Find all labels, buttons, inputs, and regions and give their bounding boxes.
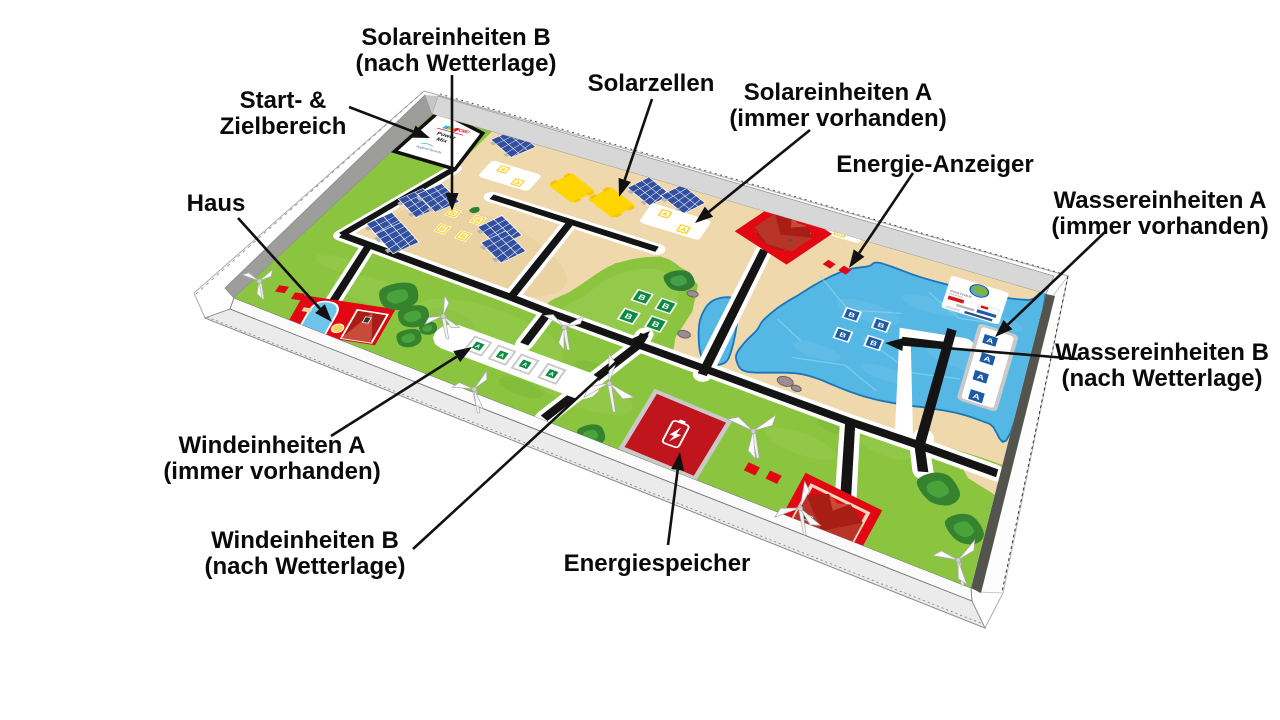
svg-text:(nach Wetterlage): (nach Wetterlage) xyxy=(356,50,557,77)
svg-text:(immer vorhanden): (immer vorhanden) xyxy=(729,105,946,132)
svg-text:(immer vorhanden): (immer vorhanden) xyxy=(163,458,380,485)
svg-text:Zielbereich: Zielbereich xyxy=(220,113,347,140)
svg-text:(immer vorhanden): (immer vorhanden) xyxy=(1051,213,1268,240)
svg-text:Energie-Anzeiger: Energie-Anzeiger xyxy=(836,151,1033,178)
svg-text:Wassereinheiten A: Wassereinheiten A xyxy=(1054,187,1267,214)
svg-text:Start- &: Start- & xyxy=(240,87,327,114)
svg-text:Energiespeicher: Energiespeicher xyxy=(564,550,751,577)
svg-text:Solareinheiten A: Solareinheiten A xyxy=(744,79,932,106)
svg-text:Windeinheiten A: Windeinheiten A xyxy=(179,432,366,459)
svg-text:(nach Wetterlage): (nach Wetterlage) xyxy=(205,553,406,580)
svg-text:Wassereinheiten B: Wassereinheiten B xyxy=(1055,339,1269,366)
svg-text:Windeinheiten B: Windeinheiten B xyxy=(211,527,399,554)
svg-text:Solarzellen: Solarzellen xyxy=(588,70,715,97)
svg-text:(nach Wetterlage): (nach Wetterlage) xyxy=(1062,365,1263,392)
svg-text:Haus: Haus xyxy=(187,190,246,217)
svg-text:Solareinheiten B: Solareinheiten B xyxy=(361,24,550,51)
